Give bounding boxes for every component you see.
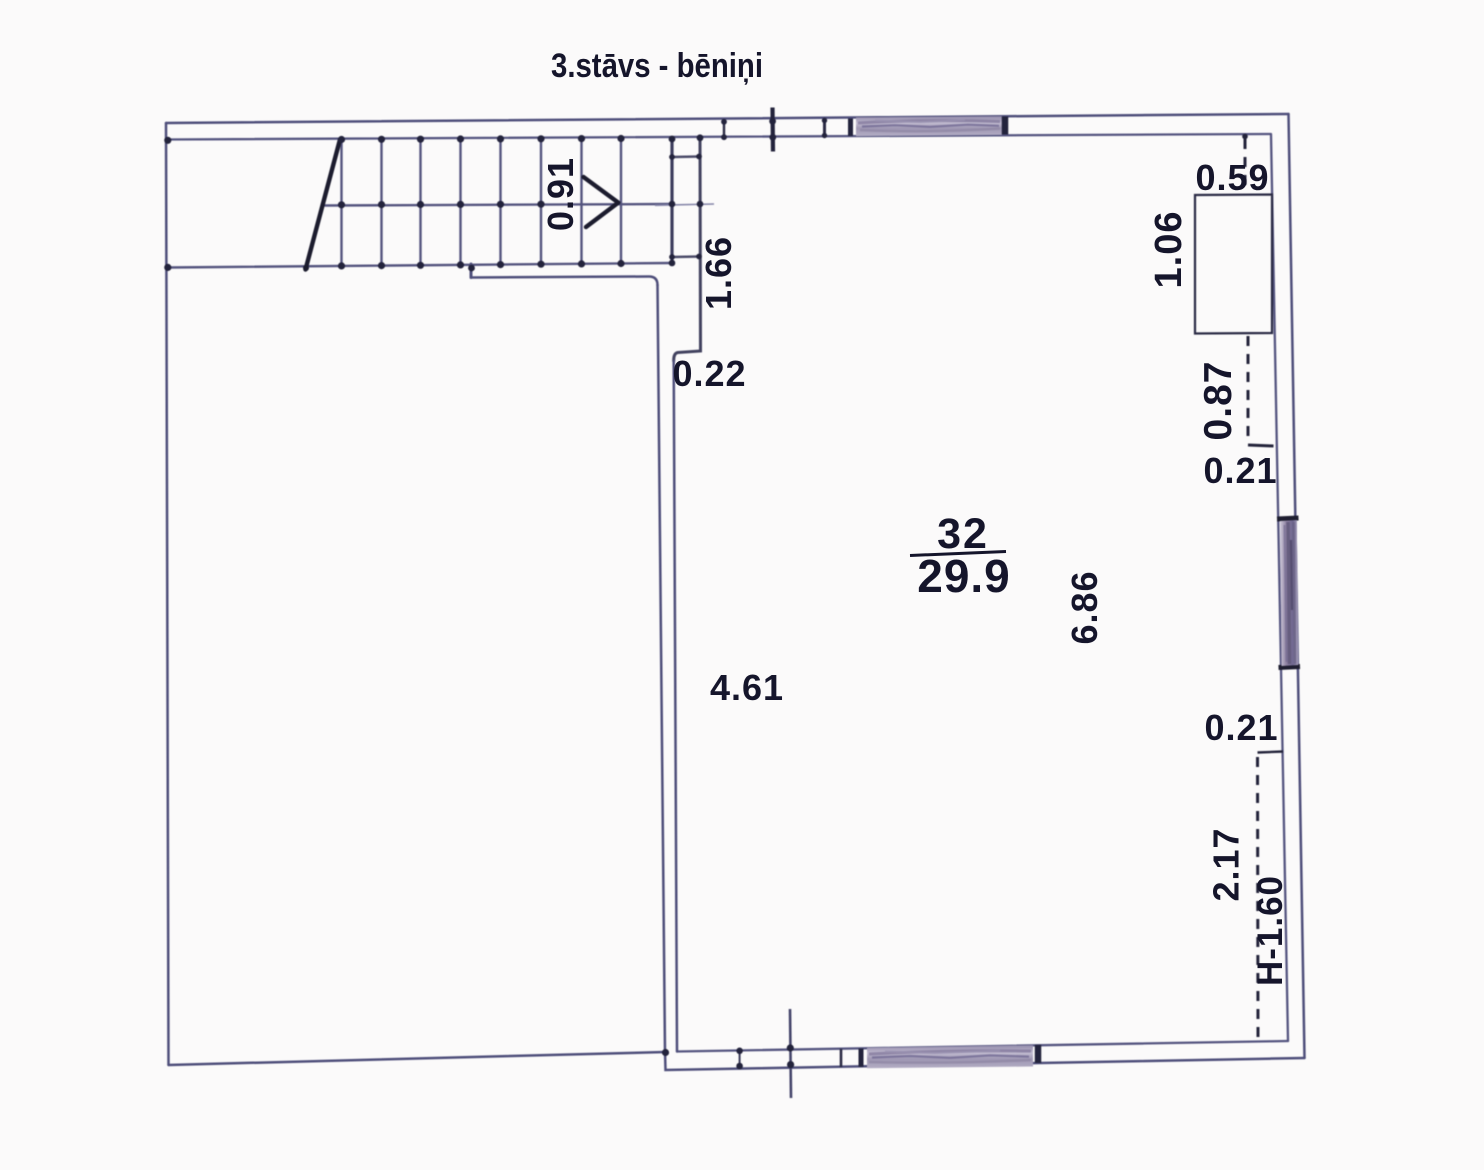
svg-text:6.86: 6.86 — [1064, 570, 1105, 644]
svg-text:0.22: 0.22 — [672, 353, 746, 394]
svg-text:1.06: 1.06 — [1148, 211, 1190, 289]
svg-text:29.9: 29.9 — [917, 550, 1011, 602]
svg-text:2.17: 2.17 — [1206, 827, 1247, 901]
svg-text:0.59: 0.59 — [1195, 157, 1269, 198]
svg-text:4.61: 4.61 — [710, 667, 784, 708]
svg-text:H-1.60: H-1.60 — [1251, 875, 1290, 986]
svg-text:1.66: 1.66 — [698, 236, 739, 310]
svg-text:0.87: 0.87 — [1197, 361, 1240, 441]
svg-text:0.21: 0.21 — [1203, 450, 1277, 491]
svg-text:0.91: 0.91 — [540, 157, 581, 231]
svg-text:0.21: 0.21 — [1204, 707, 1278, 748]
svg-text:3.stāvs - bēniņi: 3.stāvs - bēniņi — [551, 47, 763, 85]
